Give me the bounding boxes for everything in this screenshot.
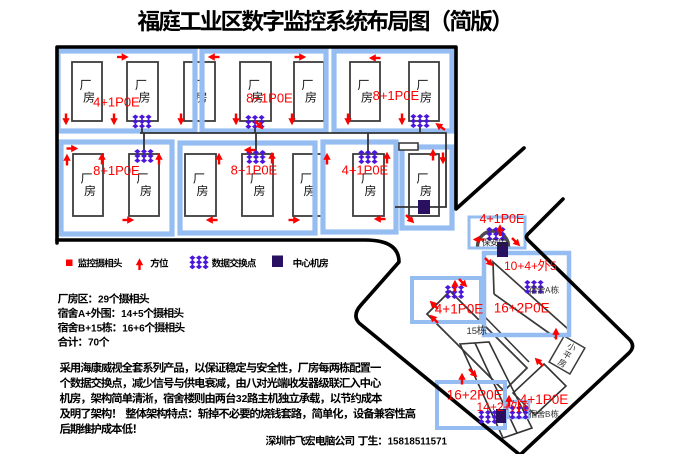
svg-text:14+2+: 14+2+	[477, 400, 511, 414]
svg-text:8+1P0E: 8+1P0E	[231, 163, 278, 178]
svg-text:4+1P0E: 4+1P0E	[93, 95, 140, 110]
svg-text:8+1P0E: 8+1P0E	[373, 88, 420, 103]
svg-text:32: 32	[236, 394, 248, 405]
svg-text:A: A	[545, 286, 551, 295]
svg-text:4+1P0E: 4+1P0E	[435, 302, 483, 317]
svg-text:15: 15	[467, 326, 478, 337]
svg-text:B: B	[545, 410, 550, 419]
svg-text:4+1P0E: 4+1P0E	[342, 163, 389, 178]
svg-text:4+1P0E: 4+1P0E	[520, 392, 568, 407]
svg-text:A+: A+	[78, 309, 91, 320]
svg-text:10+4+: 10+4+	[504, 259, 538, 273]
svg-text:16+2P0E: 16+2P0E	[494, 301, 550, 316]
svg-text:70: 70	[88, 338, 100, 349]
svg-text:14+5: 14+5	[121, 309, 144, 320]
svg-text:5: 5	[550, 259, 557, 273]
svg-text:4+1P0E: 4+1P0E	[480, 212, 525, 226]
svg-text:29: 29	[98, 295, 110, 306]
svg-text:15818511571: 15818511571	[388, 437, 448, 448]
svg-text:8+1P0E: 8+1P0E	[93, 163, 140, 178]
svg-text:16+6: 16+6	[122, 323, 145, 334]
svg-text:B+15: B+15	[78, 323, 103, 334]
svg-text:8+1P0E: 8+1P0E	[246, 91, 293, 106]
